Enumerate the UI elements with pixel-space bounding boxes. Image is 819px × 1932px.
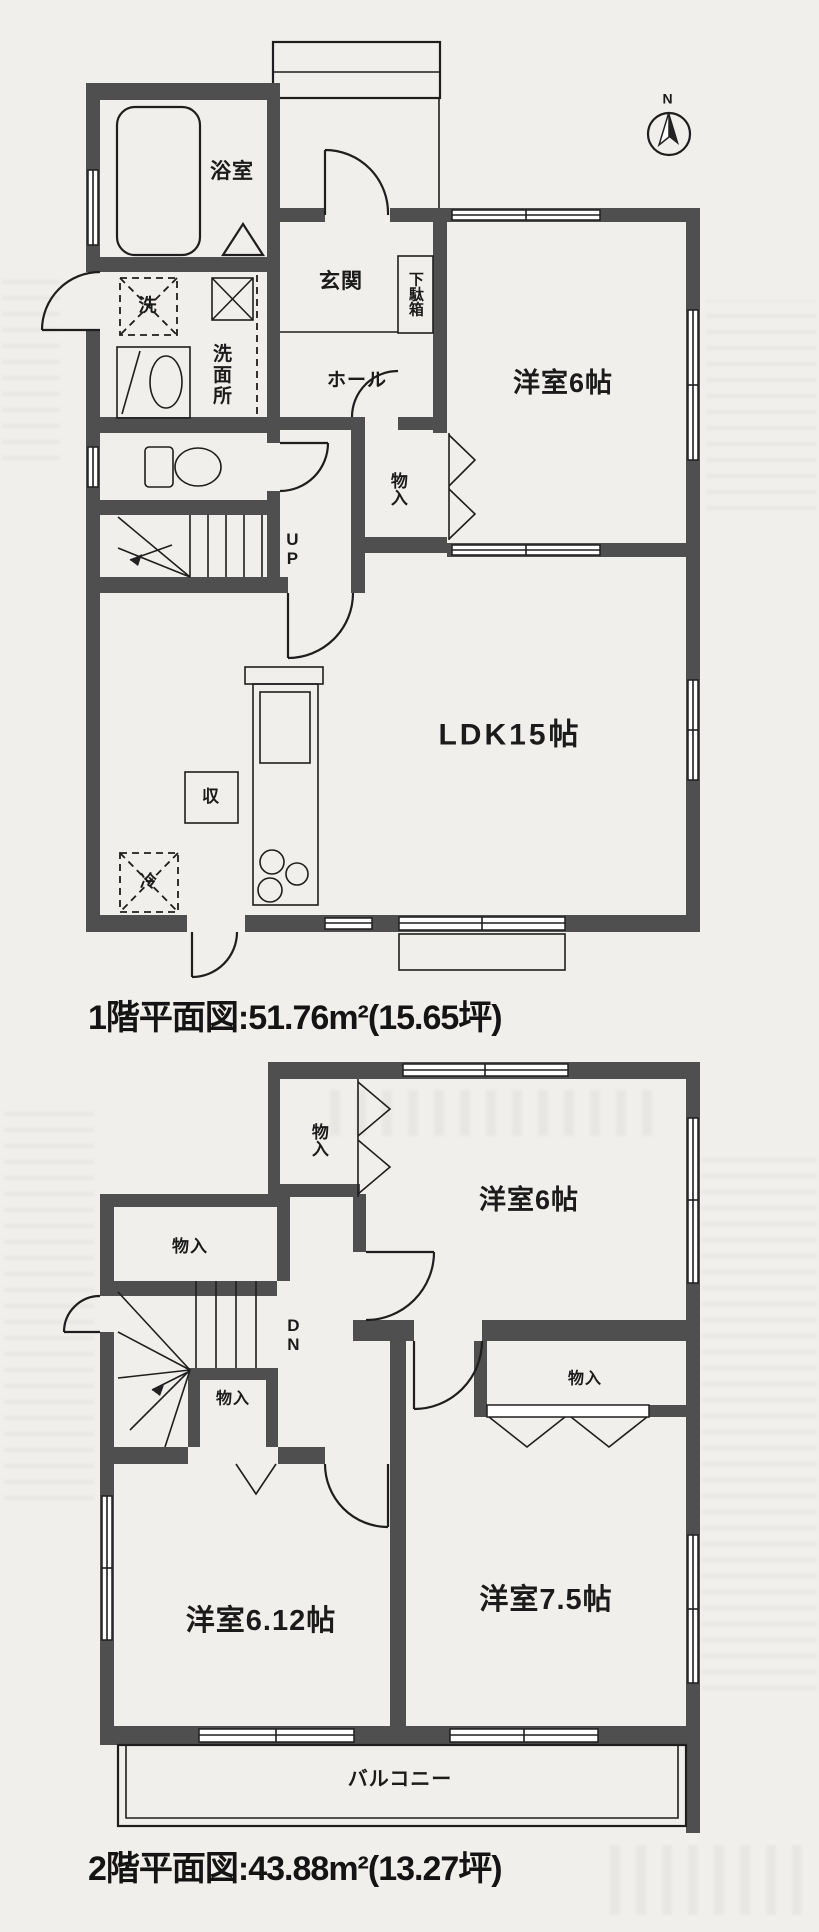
floor2-plan	[64, 1062, 700, 1833]
balcony-door-window	[450, 1729, 598, 1742]
window	[688, 1535, 698, 1683]
stairs-up	[118, 515, 262, 577]
bay-window	[399, 917, 565, 970]
floorplan-page: 浴室 洗 洗面所 玄関 下駄箱 ホール 洋室6帖 物入 UP LDK15帖 収 …	[0, 0, 819, 1932]
label-closet-mid-2f: 物入	[216, 1392, 250, 1409]
symbol-label-washer: 洗	[139, 297, 158, 316]
floor1-plan	[42, 42, 700, 977]
kitchen-back-door	[187, 915, 245, 977]
compass	[648, 112, 690, 155]
label-balcony: バルコニー	[348, 1770, 453, 1791]
room-label-ldk: LDK15帖	[438, 719, 581, 751]
label-closet-left-2f: 物入	[172, 1238, 208, 1256]
room-label-hall: ホール	[327, 371, 387, 391]
label-storage: 収	[202, 788, 220, 806]
label-closet-top-2f: 物入	[309, 1123, 327, 1157]
balcony-door-window	[199, 1729, 354, 1742]
walls-1f	[86, 83, 700, 932]
washroom-side-door	[42, 272, 100, 330]
toilet-door	[267, 443, 328, 491]
room-label-western-room6-2f: 洋室6帖	[479, 1186, 579, 1214]
closet-top-bifold	[358, 1079, 390, 1197]
bathtub	[117, 107, 200, 255]
stair-casement-window	[64, 1296, 114, 1332]
label-stairs-up: UP	[283, 530, 301, 568]
room-label-washroom: 洗面所	[210, 344, 230, 407]
floor1-caption: 1階平面図:51.76m²(15.65坪)	[88, 990, 502, 1039]
room-label-western-room6-1f: 洋室6帖	[513, 369, 613, 397]
compass-north-label: N	[662, 92, 673, 107]
stove-burners	[258, 850, 308, 902]
entrance-door	[325, 150, 390, 222]
room-label-entrance: 玄関	[319, 271, 363, 293]
label-refrigerator: 冷	[140, 873, 158, 891]
window	[88, 447, 98, 487]
closet-mid-door	[234, 1447, 278, 1494]
sliding-door-symbol	[452, 545, 600, 555]
room-label-bathroom: 浴室	[210, 161, 254, 183]
kitchen-counter	[245, 667, 323, 905]
window	[688, 310, 698, 460]
bath-folding-door	[223, 224, 263, 255]
toilet-bowl	[145, 447, 221, 487]
ldk-door	[288, 593, 353, 658]
window	[88, 170, 98, 245]
room-label-western-room75: 洋室7.5帖	[479, 1585, 612, 1615]
windows-1f	[88, 170, 698, 970]
label-shoe-cabinet: 下駄箱	[407, 272, 423, 317]
window	[102, 1496, 112, 1640]
label-closet-1f: 物入	[388, 472, 406, 506]
room612-door	[325, 1447, 388, 1527]
stairs-down	[118, 1281, 256, 1447]
window	[452, 210, 600, 220]
room75-door	[414, 1320, 482, 1409]
floor2-caption: 2階平面図:43.88m²(13.27坪)	[88, 1841, 502, 1890]
walls-2f	[100, 1062, 700, 1833]
room-label-western-room612: 洋室6.12帖	[186, 1606, 336, 1636]
porch-outline	[273, 42, 440, 208]
vanity-basin	[117, 347, 190, 418]
label-stairs-down: DN	[284, 1316, 302, 1354]
window	[403, 1064, 568, 1076]
window	[688, 680, 698, 780]
label-closet-right-2f: 物入	[568, 1372, 602, 1389]
room6-door-2f	[353, 1252, 434, 1320]
closet-right-front	[487, 1405, 649, 1447]
closet-bifold-1f	[449, 433, 475, 540]
window	[688, 1118, 698, 1283]
window	[325, 918, 372, 929]
